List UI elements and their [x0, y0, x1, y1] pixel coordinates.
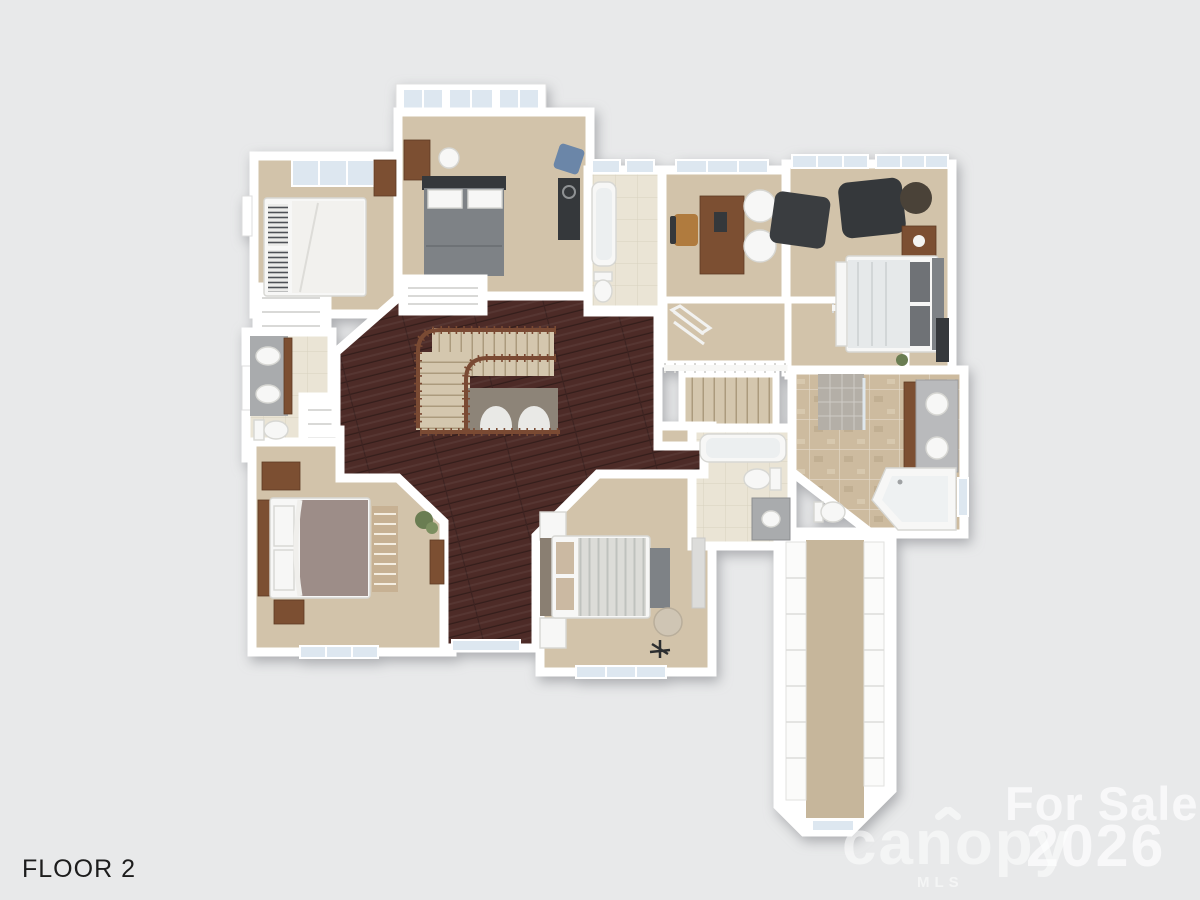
bed-top-center	[422, 176, 506, 276]
pouf-stool	[744, 190, 776, 222]
bed-bench	[836, 262, 847, 346]
knee-wall-left	[786, 542, 806, 800]
slat-bench	[372, 506, 398, 592]
dresser-top-left	[374, 160, 396, 196]
window-bedroom-bottom-center	[576, 666, 666, 678]
pillow	[910, 306, 930, 346]
pillow	[468, 190, 502, 208]
toilet-hall2	[744, 468, 781, 490]
dresser-bottom-left	[262, 462, 300, 490]
wicker-chair	[900, 182, 932, 214]
desk-lamp	[714, 212, 727, 232]
sink	[926, 393, 948, 415]
bathtub-top	[592, 182, 616, 266]
closet-top-center	[402, 278, 484, 312]
dresser-top-center	[404, 140, 430, 180]
window-master-2	[876, 155, 948, 168]
console-bottom-left	[430, 540, 444, 584]
armchair	[654, 608, 682, 636]
floor-label: FLOOR 2	[22, 855, 136, 884]
canopy-roof-icon	[934, 806, 960, 820]
sink	[256, 385, 280, 403]
shower-master	[818, 374, 864, 430]
nightstand-bottom-left	[274, 600, 304, 624]
striped-pillow	[268, 250, 288, 292]
desk-chair	[670, 214, 698, 246]
sink	[762, 511, 780, 527]
ottoman	[769, 190, 832, 249]
sink	[256, 347, 280, 365]
bathtub-hall2	[700, 434, 786, 462]
bonus-room	[778, 532, 892, 832]
media-console	[558, 178, 580, 240]
desk	[700, 196, 744, 274]
vanity-left-bath	[250, 336, 292, 416]
floorplan-3d-render	[0, 0, 1200, 900]
bed-bench-gray	[650, 548, 670, 608]
watermark-mls: MLS	[917, 874, 964, 891]
pillow	[910, 262, 930, 302]
plant-master	[896, 354, 908, 366]
striped-pillow	[268, 204, 288, 246]
pillow	[428, 190, 462, 208]
nightstand-master	[902, 226, 936, 256]
toilet-master	[814, 502, 845, 522]
window-hall-end	[452, 640, 520, 651]
chaise-lounge	[837, 177, 907, 239]
bed-master	[836, 256, 944, 352]
window-master-bath	[958, 478, 968, 516]
toilet-top-bath	[594, 272, 612, 302]
pillow	[556, 578, 574, 610]
pillow	[556, 542, 574, 574]
watermark-year: 2026	[1026, 812, 1165, 880]
bonus-room-carpet	[806, 540, 864, 818]
side-table	[439, 148, 459, 168]
tv-dresser	[936, 318, 949, 362]
walk-in-closet	[664, 300, 790, 364]
nightstand	[540, 618, 566, 648]
console-table	[692, 538, 705, 608]
sink	[926, 437, 948, 459]
window-west-wall	[242, 196, 252, 236]
window-office	[676, 160, 768, 173]
bed-top-left	[264, 198, 366, 296]
window-bedroom-top-left	[292, 160, 374, 186]
toilet-left-bath	[254, 420, 288, 440]
vanity-hall2	[752, 498, 790, 540]
bed-bottom-center	[540, 536, 670, 618]
pillow	[274, 550, 294, 590]
vanity-master	[904, 380, 958, 472]
bed-bottom-left	[258, 498, 398, 598]
window-bedroom-bottom-left	[300, 646, 378, 658]
floorplan-canvas: FLOOR 2 For Sale canopy 2026 MLS	[0, 0, 1200, 900]
pillow	[274, 506, 294, 546]
window-master-1	[792, 155, 868, 168]
